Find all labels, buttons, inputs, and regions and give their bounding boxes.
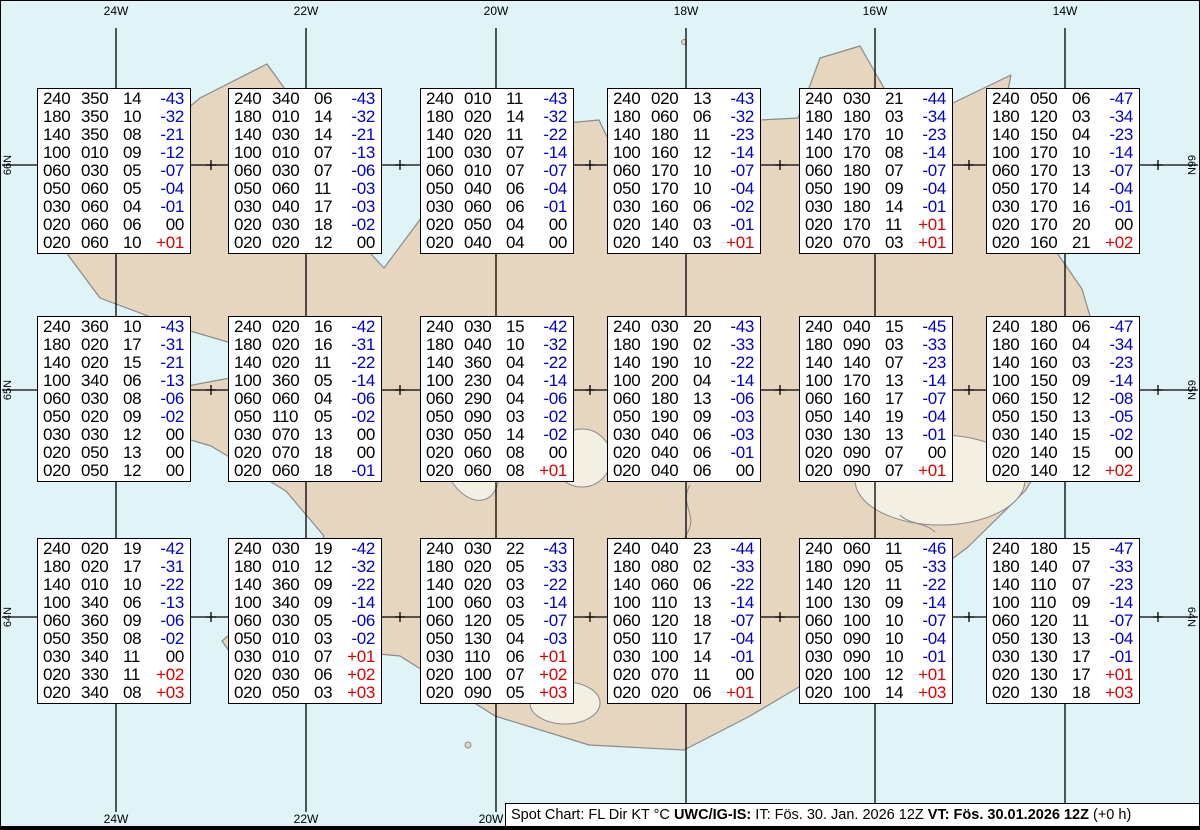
flight-level-cell: 020 <box>992 462 1030 480</box>
spot-row: 14014007-23 <box>805 354 946 372</box>
temperature-cell: -33 <box>1103 558 1133 576</box>
flight-level-cell: 180 <box>805 336 843 354</box>
wind-direction-cell: 190 <box>651 336 693 354</box>
wind-speed-cell: 09 <box>693 408 724 426</box>
flight-level-cell: 030 <box>43 198 81 216</box>
temperature-cell: -02 <box>724 198 754 216</box>
spot-row: 0201401500 <box>992 444 1133 462</box>
wind-direction-cell: 140 <box>651 234 693 252</box>
spot-row: 06010010-07 <box>805 612 946 630</box>
wind-speed-cell: 04 <box>1072 336 1103 354</box>
temperature-cell: -06 <box>345 390 375 408</box>
wind-direction-cell: 170 <box>1030 144 1072 162</box>
temperature-cell: -03 <box>345 198 375 216</box>
spot-row: 18014007-33 <box>992 558 1133 576</box>
spot-row: 14019010-22 <box>613 354 754 372</box>
temperature-cell: -21 <box>154 354 184 372</box>
latitude-label-left: 65N <box>2 380 14 400</box>
temperature-cell: +01 <box>916 216 946 234</box>
wind-direction-cell: 040 <box>843 318 885 336</box>
wind-direction-cell: 020 <box>81 336 123 354</box>
temperature-cell: +02 <box>345 666 375 684</box>
wind-direction-cell: 030 <box>464 144 506 162</box>
flight-level-cell: 180 <box>426 558 464 576</box>
wind-speed-cell: 13 <box>1072 162 1103 180</box>
flight-level-cell: 140 <box>613 126 651 144</box>
wind-speed-cell: 04 <box>506 630 537 648</box>
spot-row: 10034009-14 <box>234 594 375 612</box>
wind-direction-cell: 010 <box>272 108 314 126</box>
temperature-cell: 00 <box>345 444 375 462</box>
wind-speed-cell: 08 <box>123 126 154 144</box>
spot-row: 02010014+03 <box>805 684 946 702</box>
temperature-cell: -47 <box>1103 90 1133 108</box>
wind-direction-cell: 290 <box>464 390 506 408</box>
wind-direction-cell: 030 <box>81 162 123 180</box>
spot-row: 02014003-01 <box>613 216 754 234</box>
wind-speed-cell: 07 <box>1072 576 1103 594</box>
wind-speed-cell: 12 <box>1072 462 1103 480</box>
flight-level-cell: 240 <box>426 318 464 336</box>
wind-direction-cell: 190 <box>843 180 885 198</box>
wind-speed-cell: 10 <box>123 108 154 126</box>
flight-level-cell: 020 <box>613 462 651 480</box>
wind-speed-cell: 02 <box>693 336 724 354</box>
flight-level-cell: 030 <box>613 648 651 666</box>
wind-direction-cell: 030 <box>272 666 314 684</box>
flight-level-cell: 030 <box>234 648 272 666</box>
wind-direction-cell: 060 <box>81 234 123 252</box>
flight-level-cell: 020 <box>805 234 843 252</box>
temperature-cell: 00 <box>724 666 754 684</box>
flight-level-cell: 140 <box>805 576 843 594</box>
wind-direction-cell: 030 <box>651 318 693 336</box>
wind-direction-cell: 060 <box>272 390 314 408</box>
temperature-cell: -42 <box>345 318 375 336</box>
spot-row: 24035014-43 <box>43 90 184 108</box>
status-bar-bold-text: VT: Fös. 30.01.2026 12Z <box>928 807 1089 823</box>
temperature-cell: -06 <box>537 390 567 408</box>
wind-speed-cell: 13 <box>123 444 154 462</box>
flight-level-cell: 100 <box>43 594 81 612</box>
wind-direction-cell: 010 <box>272 648 314 666</box>
flight-level-cell: 050 <box>234 408 272 426</box>
wind-speed-cell: 03 <box>1072 354 1103 372</box>
wind-speed-cell: 05 <box>123 180 154 198</box>
wind-direction-cell: 230 <box>464 372 506 390</box>
temperature-cell: -07 <box>916 612 946 630</box>
temperature-cell: -42 <box>154 540 184 558</box>
wind-speed-cell: 07 <box>506 666 537 684</box>
wind-speed-cell: 15 <box>506 318 537 336</box>
temperature-cell: -07 <box>537 162 567 180</box>
flight-level-cell: 180 <box>234 558 272 576</box>
temperature-cell: -01 <box>916 198 946 216</box>
temperature-cell: -01 <box>154 198 184 216</box>
wind-speed-cell: 14 <box>123 90 154 108</box>
flight-level-cell: 020 <box>43 462 81 480</box>
flight-level-cell: 240 <box>613 318 651 336</box>
spot-row: 10015009-14 <box>992 372 1133 390</box>
wind-direction-cell: 350 <box>81 90 123 108</box>
spot-row: 0200501200 <box>43 462 184 480</box>
wind-speed-cell: 09 <box>123 408 154 426</box>
spot-row: 02013018+03 <box>992 684 1133 702</box>
flight-level-cell: 020 <box>43 666 81 684</box>
wind-direction-cell: 050 <box>464 216 506 234</box>
spot-row: 03013013-01 <box>805 426 946 444</box>
wind-direction-cell: 010 <box>272 558 314 576</box>
spot-row: 06017013-07 <box>992 162 1133 180</box>
wind-speed-cell: 03 <box>885 234 916 252</box>
temperature-cell: -01 <box>537 198 567 216</box>
temperature-cell: -32 <box>345 108 375 126</box>
temperature-cell: -21 <box>345 126 375 144</box>
wind-direction-cell: 110 <box>272 408 314 426</box>
wind-direction-cell: 180 <box>1030 318 1072 336</box>
flight-level-cell: 020 <box>805 462 843 480</box>
spot-row: 02003006+02 <box>234 666 375 684</box>
wind-speed-cell: 10 <box>885 126 916 144</box>
flight-level-cell: 020 <box>805 666 843 684</box>
temperature-cell: -07 <box>916 162 946 180</box>
spot-table: 24018015-4718014007-3314011007-231001100… <box>986 538 1140 704</box>
flight-level-cell: 020 <box>992 684 1030 702</box>
temperature-cell: -06 <box>345 162 375 180</box>
spot-row: 02006018-01 <box>234 462 375 480</box>
spot-row: 14006006-22 <box>613 576 754 594</box>
wind-speed-cell: 17 <box>693 630 724 648</box>
flight-level-cell: 180 <box>234 336 272 354</box>
wind-direction-cell: 340 <box>81 372 123 390</box>
wind-speed-cell: 13 <box>693 90 724 108</box>
wind-speed-cell: 15 <box>1072 444 1103 462</box>
wind-direction-cell: 180 <box>843 108 885 126</box>
wind-speed-cell: 07 <box>314 162 345 180</box>
wind-direction-cell: 350 <box>81 108 123 126</box>
wind-speed-cell: 03 <box>1072 108 1103 126</box>
temperature-cell: -03 <box>724 408 754 426</box>
temperature-cell: -01 <box>724 216 754 234</box>
spot-row: 24002013-43 <box>613 90 754 108</box>
flight-level-cell: 020 <box>613 444 651 462</box>
wind-direction-cell: 130 <box>1030 666 1072 684</box>
wind-speed-cell: 04 <box>506 234 537 252</box>
spot-row: 14036004-22 <box>426 354 567 372</box>
spot-row: 02014003+01 <box>613 234 754 252</box>
spot-row: 03018014-01 <box>805 198 946 216</box>
temperature-cell: -22 <box>345 576 375 594</box>
spot-row: 24003020-43 <box>613 318 754 336</box>
wind-speed-cell: 11 <box>314 180 345 198</box>
wind-direction-cell: 360 <box>272 372 314 390</box>
temperature-cell: +03 <box>154 684 184 702</box>
wind-speed-cell: 14 <box>314 108 345 126</box>
wind-speed-cell: 16 <box>1072 198 1103 216</box>
flight-level-cell: 020 <box>992 444 1030 462</box>
flight-level-cell: 050 <box>234 630 272 648</box>
spot-row: 0200500400 <box>426 216 567 234</box>
wind-speed-cell: 06 <box>693 426 724 444</box>
wind-direction-cell: 070 <box>651 666 693 684</box>
flight-level-cell: 140 <box>43 354 81 372</box>
temperature-cell: -13 <box>154 372 184 390</box>
wind-direction-cell: 110 <box>651 594 693 612</box>
spot-row: 05009003-02 <box>426 408 567 426</box>
wind-speed-cell: 09 <box>885 180 916 198</box>
flight-level-cell: 020 <box>426 444 464 462</box>
flight-level-cell: 180 <box>992 558 1030 576</box>
temperature-cell: +02 <box>1103 234 1133 252</box>
wind-speed-cell: 17 <box>885 390 916 408</box>
flight-level-cell: 050 <box>805 408 843 426</box>
wind-direction-cell: 170 <box>651 162 693 180</box>
spot-row: 06003008-06 <box>43 390 184 408</box>
flight-level-cell: 020 <box>234 216 272 234</box>
temperature-cell: -07 <box>724 162 754 180</box>
wind-speed-cell: 09 <box>314 594 345 612</box>
spot-row: 03006004-01 <box>43 198 184 216</box>
flight-level-cell: 060 <box>426 390 464 408</box>
wind-speed-cell: 17 <box>314 198 345 216</box>
flight-level-cell: 240 <box>805 90 843 108</box>
temperature-cell: -22 <box>537 576 567 594</box>
spot-row: 0200400400 <box>426 234 567 252</box>
flight-level-cell: 180 <box>234 108 272 126</box>
wind-direction-cell: 110 <box>651 630 693 648</box>
temperature-cell: -05 <box>1103 408 1133 426</box>
wind-speed-cell: 10 <box>693 180 724 198</box>
flight-level-cell: 140 <box>992 354 1030 372</box>
latitude-label-right: 65N <box>1185 380 1197 400</box>
temperature-cell: -32 <box>345 558 375 576</box>
flight-level-cell: 060 <box>43 162 81 180</box>
spot-row: 05004006-04 <box>426 180 567 198</box>
wind-speed-cell: 17 <box>1072 666 1103 684</box>
flight-level-cell: 140 <box>43 576 81 594</box>
temperature-cell: -22 <box>537 354 567 372</box>
wind-speed-cell: 09 <box>885 594 916 612</box>
temperature-cell: -33 <box>916 336 946 354</box>
spot-row: 18035010-32 <box>43 108 184 126</box>
wind-speed-cell: 12 <box>885 666 916 684</box>
wind-direction-cell: 170 <box>1030 216 1072 234</box>
spot-row: 24003022-43 <box>426 540 567 558</box>
temperature-cell: -04 <box>1103 180 1133 198</box>
wind-direction-cell: 160 <box>1030 336 1072 354</box>
wind-direction-cell: 010 <box>81 576 123 594</box>
flight-level-cell: 240 <box>805 318 843 336</box>
temperature-cell: -06 <box>345 612 375 630</box>
spot-table: 24002019-4218002017-3114001010-221003400… <box>37 538 191 704</box>
flight-level-cell: 030 <box>234 426 272 444</box>
spot-row: 06012018-07 <box>613 612 754 630</box>
wind-direction-cell: 120 <box>1030 108 1072 126</box>
wind-direction-cell: 040 <box>651 426 693 444</box>
temperature-cell: +03 <box>345 684 375 702</box>
spot-row: 18004010-32 <box>426 336 567 354</box>
wind-direction-cell: 020 <box>464 558 506 576</box>
wind-speed-cell: 13 <box>885 372 916 390</box>
wind-speed-cell: 05 <box>506 684 537 702</box>
wind-direction-cell: 060 <box>651 108 693 126</box>
temperature-cell: -13 <box>154 594 184 612</box>
spot-table: 24003021-4418018003-3414017010-231001700… <box>799 88 953 254</box>
wind-direction-cell: 030 <box>272 126 314 144</box>
latitude-label-right: 66N <box>1185 155 1197 175</box>
spot-row: 10017010-14 <box>992 144 1133 162</box>
wind-direction-cell: 070 <box>272 444 314 462</box>
wind-direction-cell: 020 <box>81 540 123 558</box>
wind-direction-cell: 030 <box>272 540 314 558</box>
wind-direction-cell: 340 <box>81 648 123 666</box>
temperature-cell: 00 <box>154 462 184 480</box>
spot-row: 10011013-14 <box>613 594 754 612</box>
temperature-cell: -14 <box>1103 144 1133 162</box>
flight-level-cell: 020 <box>234 666 272 684</box>
wind-speed-cell: 04 <box>1072 126 1103 144</box>
temperature-cell: -23 <box>1103 576 1133 594</box>
spot-row: 14015004-23 <box>992 126 1133 144</box>
latitude-label-right: 64N <box>1185 607 1197 627</box>
flight-level-cell: 020 <box>426 666 464 684</box>
wind-speed-cell: 07 <box>885 354 916 372</box>
wind-speed-cell: 14 <box>885 198 916 216</box>
wind-direction-cell: 130 <box>843 594 885 612</box>
flight-level-cell: 060 <box>805 162 843 180</box>
wind-direction-cell: 060 <box>272 462 314 480</box>
wind-direction-cell: 180 <box>651 126 693 144</box>
wind-direction-cell: 070 <box>272 426 314 444</box>
spot-row: 05019009-03 <box>613 408 754 426</box>
flight-level-cell: 240 <box>234 540 272 558</box>
wind-speed-cell: 09 <box>314 576 345 594</box>
spot-row: 05015013-05 <box>992 408 1133 426</box>
wind-speed-cell: 08 <box>123 630 154 648</box>
wind-direction-cell: 020 <box>272 336 314 354</box>
flight-level-cell: 100 <box>234 372 272 390</box>
spot-row: 06003005-06 <box>234 612 375 630</box>
spot-row: 03009010-01 <box>805 648 946 666</box>
spot-row: 24034006-43 <box>234 90 375 108</box>
flight-level-cell: 050 <box>43 630 81 648</box>
flight-level-cell: 020 <box>805 444 843 462</box>
flight-level-cell: 050 <box>426 630 464 648</box>
wind-direction-cell: 050 <box>272 684 314 702</box>
flight-level-cell: 100 <box>805 594 843 612</box>
wind-speed-cell: 20 <box>1072 216 1103 234</box>
wind-speed-cell: 12 <box>123 462 154 480</box>
wind-speed-cell: 06 <box>1072 318 1103 336</box>
flight-level-cell: 060 <box>805 612 843 630</box>
flight-level-cell: 100 <box>43 372 81 390</box>
spot-row: 18001014-32 <box>234 108 375 126</box>
wind-speed-cell: 03 <box>693 216 724 234</box>
temperature-cell: -01 <box>916 426 946 444</box>
flight-level-cell: 020 <box>43 444 81 462</box>
spot-row: 18009003-33 <box>805 336 946 354</box>
spot-row: 14035008-21 <box>43 126 184 144</box>
wind-direction-cell: 060 <box>272 180 314 198</box>
flight-level-cell: 100 <box>613 594 651 612</box>
temperature-cell: +02 <box>154 666 184 684</box>
wind-speed-cell: 15 <box>123 354 154 372</box>
spot-table: 24001011-4318002014-3214002011-221000300… <box>420 88 574 254</box>
wind-direction-cell: 020 <box>651 684 693 702</box>
wind-speed-cell: 09 <box>123 612 154 630</box>
temperature-cell: -06 <box>154 390 184 408</box>
wind-direction-cell: 060 <box>464 594 506 612</box>
wind-direction-cell: 110 <box>1030 576 1072 594</box>
wind-speed-cell: 08 <box>506 462 537 480</box>
temperature-cell: -04 <box>916 180 946 198</box>
wind-speed-cell: 06 <box>314 666 345 684</box>
spot-row: 18018003-34 <box>805 108 946 126</box>
flight-level-cell: 030 <box>805 426 843 444</box>
spot-row: 18002014-32 <box>426 108 567 126</box>
wind-direction-cell: 010 <box>464 162 506 180</box>
spot-row: 24036010-43 <box>43 318 184 336</box>
spot-row: 0200900700 <box>805 444 946 462</box>
wind-speed-cell: 03 <box>314 630 345 648</box>
temperature-cell: -23 <box>916 126 946 144</box>
flight-level-cell: 030 <box>992 426 1030 444</box>
wind-speed-cell: 12 <box>314 234 345 252</box>
flight-level-cell: 180 <box>426 108 464 126</box>
wind-direction-cell: 160 <box>1030 234 1072 252</box>
wind-direction-cell: 170 <box>843 372 885 390</box>
wind-speed-cell: 18 <box>314 462 345 480</box>
temperature-cell: +01 <box>345 648 375 666</box>
wind-speed-cell: 11 <box>693 666 724 684</box>
temperature-cell: -02 <box>345 408 375 426</box>
temperature-cell: -14 <box>916 594 946 612</box>
wind-direction-cell: 180 <box>1030 540 1072 558</box>
temperature-cell: -14 <box>1103 594 1133 612</box>
wind-speed-cell: 16 <box>314 336 345 354</box>
wind-speed-cell: 08 <box>123 390 154 408</box>
wind-speed-cell: 06 <box>693 444 724 462</box>
wind-speed-cell: 06 <box>693 108 724 126</box>
temperature-cell: 00 <box>154 648 184 666</box>
temperature-cell: -43 <box>537 540 567 558</box>
spot-row: 03017016-01 <box>992 198 1133 216</box>
spot-row: 02016021+02 <box>992 234 1133 252</box>
temperature-cell: -32 <box>537 336 567 354</box>
flight-level-cell: 020 <box>613 666 651 684</box>
flight-level-cell: 020 <box>613 234 651 252</box>
wind-direction-cell: 090 <box>843 648 885 666</box>
wind-direction-cell: 050 <box>1030 90 1072 108</box>
temperature-cell: -14 <box>1103 372 1133 390</box>
spot-table: 24003020-4318019002-3314019010-221002000… <box>607 316 761 482</box>
spot-row: 06012005-07 <box>426 612 567 630</box>
wind-direction-cell: 140 <box>1030 462 1072 480</box>
temperature-cell: +03 <box>916 684 946 702</box>
spot-row: 02007003+01 <box>805 234 946 252</box>
wind-speed-cell: 09 <box>1072 594 1103 612</box>
wind-speed-cell: 10 <box>123 318 154 336</box>
temperature-cell: 00 <box>1103 216 1133 234</box>
spot-row: 02013017+01 <box>992 666 1133 684</box>
wind-speed-cell: 10 <box>885 630 916 648</box>
spot-row: 06018013-06 <box>613 390 754 408</box>
temperature-cell: -22 <box>154 576 184 594</box>
wind-direction-cell: 020 <box>464 126 506 144</box>
flight-level-cell: 050 <box>613 180 651 198</box>
spot-row: 05009010-04 <box>805 630 946 648</box>
longitude-label-top: 18W <box>674 4 699 18</box>
